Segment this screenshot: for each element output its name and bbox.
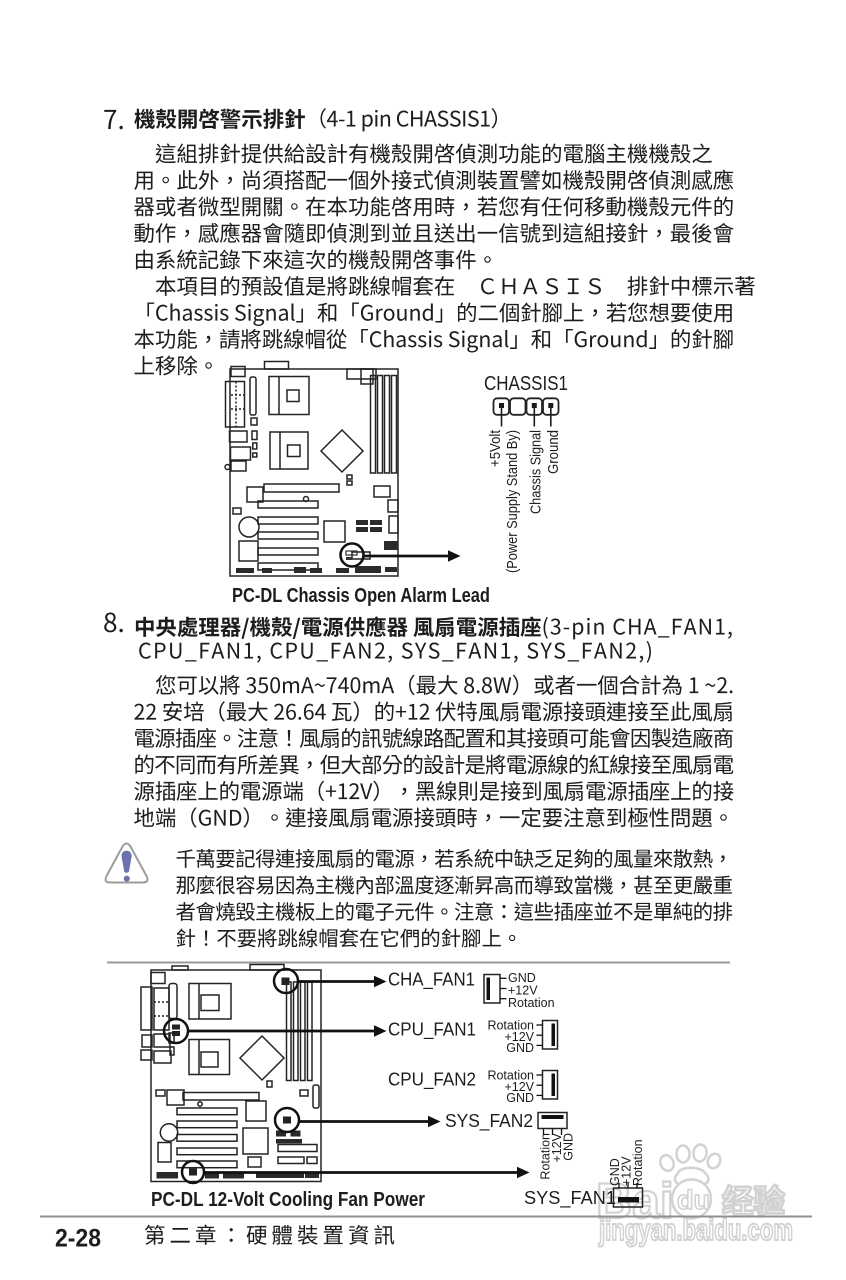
svg-text:GND: GND <box>506 1041 534 1055</box>
svg-text:CHASSIS1: CHASSIS1 <box>484 373 568 395</box>
svg-text:+5Volt: +5Volt <box>487 429 504 467</box>
svg-text:PC-DL Chassis Open Alarm Lead: PC-DL Chassis Open Alarm Lead <box>232 584 490 607</box>
svg-text:GND: GND <box>506 1091 534 1105</box>
svg-text:2-28: 2-28 <box>55 1225 101 1253</box>
svg-text:PC-DL 12-Volt Cooling Fan Powe: PC-DL 12-Volt Cooling Fan Power <box>151 1188 425 1211</box>
svg-text:CPU_FAN2: CPU_FAN2 <box>388 1069 476 1091</box>
svg-text:Rotation: Rotation <box>508 996 555 1010</box>
svg-text:GND: GND <box>562 1133 576 1161</box>
svg-text:(Power Supply Stand By): (Power Supply Stand By) <box>504 430 521 573</box>
svg-text:SYS_FAN1: SYS_FAN1 <box>524 1187 616 1209</box>
svg-text:SYS_FAN2: SYS_FAN2 <box>445 1110 533 1132</box>
svg-text:CPU_FAN1: CPU_FAN1 <box>388 1019 476 1041</box>
svg-text:du: du <box>677 1185 710 1215</box>
svg-text:Ground: Ground <box>545 430 562 474</box>
svg-text:CHA_FAN1: CHA_FAN1 <box>388 969 475 991</box>
svg-text:Rotation: Rotation <box>631 1139 645 1186</box>
svg-text:Chassis Signal: Chassis Signal <box>528 430 545 514</box>
